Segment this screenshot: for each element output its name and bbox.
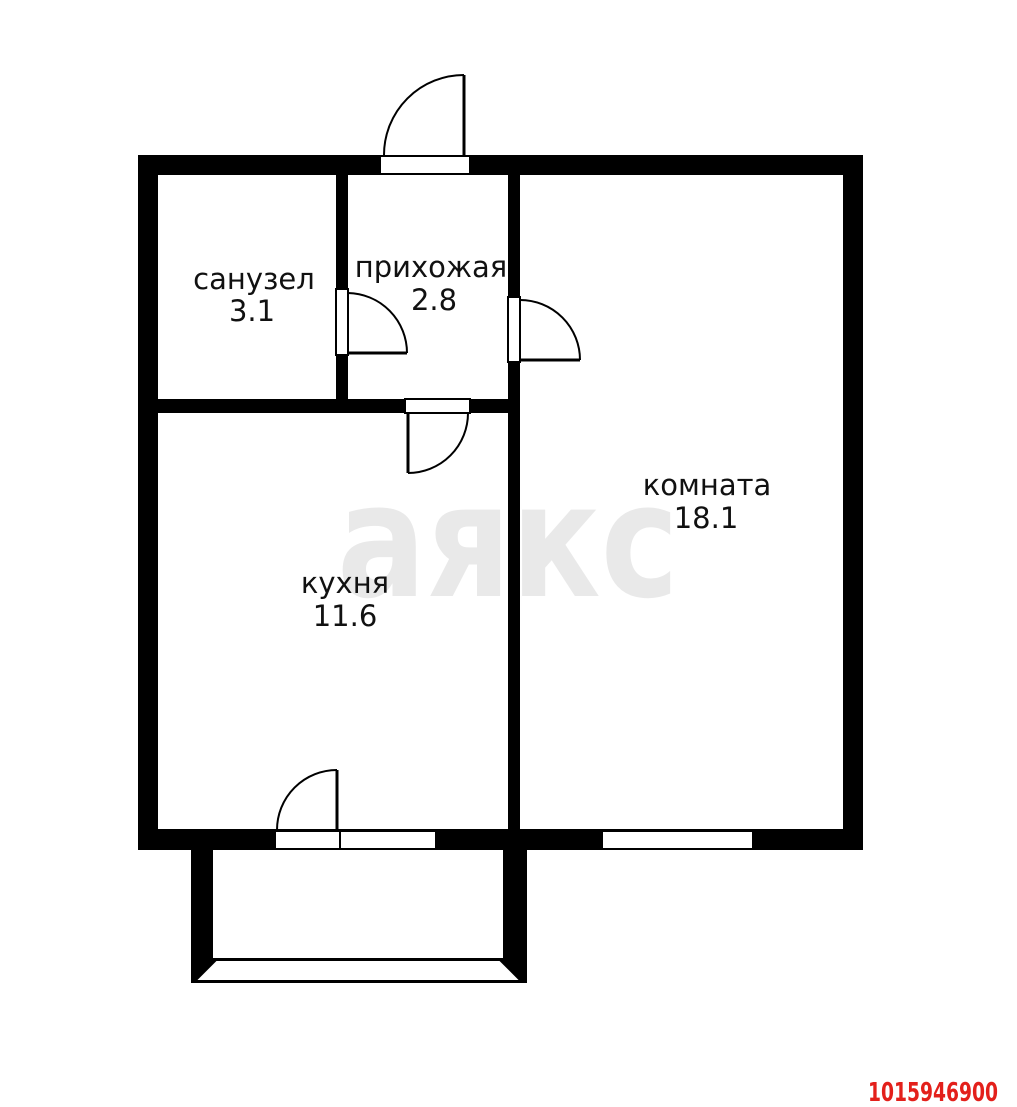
wall-right <box>843 155 863 850</box>
room-label-room-name: комната <box>643 468 772 502</box>
entrance-door-arc <box>384 75 464 155</box>
listing-id: 1015946900 <box>868 1078 998 1107</box>
floorplan-image: аякс <box>0 0 1017 1107</box>
bathroom-door-opening <box>336 289 348 355</box>
wall-hall-room <box>508 175 520 850</box>
kitchen-balcony-door-arc <box>277 770 337 830</box>
room-label-bathroom-area: 3.1 <box>229 294 275 328</box>
room-label-kitchen-name: кухня <box>301 566 389 600</box>
balcony-interior <box>213 850 503 958</box>
room-label-bathroom-name: санузел <box>193 262 315 296</box>
bathroom-door-arc <box>348 293 407 353</box>
balcony-block-opening <box>275 831 436 849</box>
hall-room-door-opening <box>508 297 520 362</box>
balcony <box>191 850 527 983</box>
wall-left <box>138 155 158 850</box>
room-label-room-area: 18.1 <box>674 501 739 535</box>
room-window <box>602 831 753 849</box>
entrance-opening <box>380 156 470 174</box>
floorplan-svg: аякс <box>0 0 1017 1107</box>
room-label-hall-name: прихожая <box>355 250 507 284</box>
room-label-kitchen-area: 11.6 <box>313 599 378 633</box>
wall-bottom <box>138 829 863 850</box>
hall-room-door-arc <box>520 300 580 360</box>
hall-kitchen-door-opening <box>405 399 470 413</box>
wall-top <box>138 155 863 175</box>
balcony-railing <box>195 960 521 981</box>
room-label-hall-area: 2.8 <box>411 283 457 317</box>
